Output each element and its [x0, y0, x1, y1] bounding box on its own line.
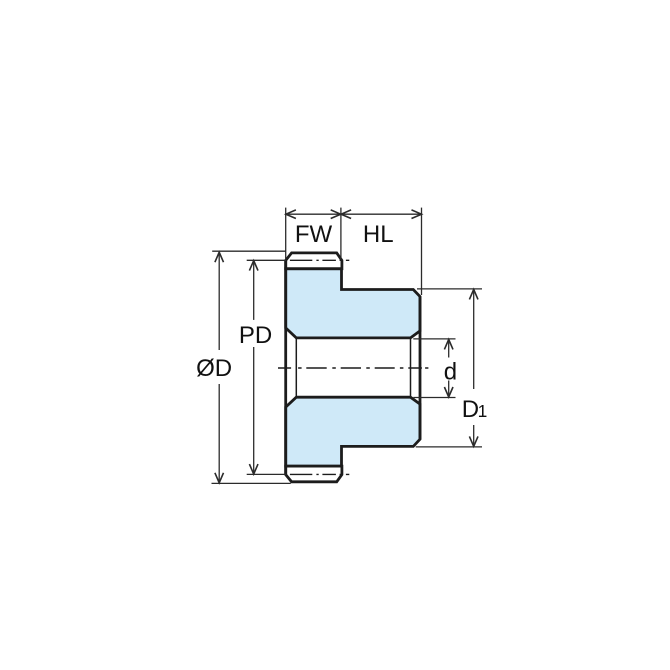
svg-text:d: d	[444, 358, 457, 385]
svg-text:HL: HL	[363, 221, 394, 248]
svg-text:D1: D1	[462, 396, 488, 423]
svg-text:FW: FW	[295, 221, 333, 248]
svg-text:ØD: ØD	[196, 355, 232, 382]
svg-text:PD: PD	[239, 322, 272, 349]
